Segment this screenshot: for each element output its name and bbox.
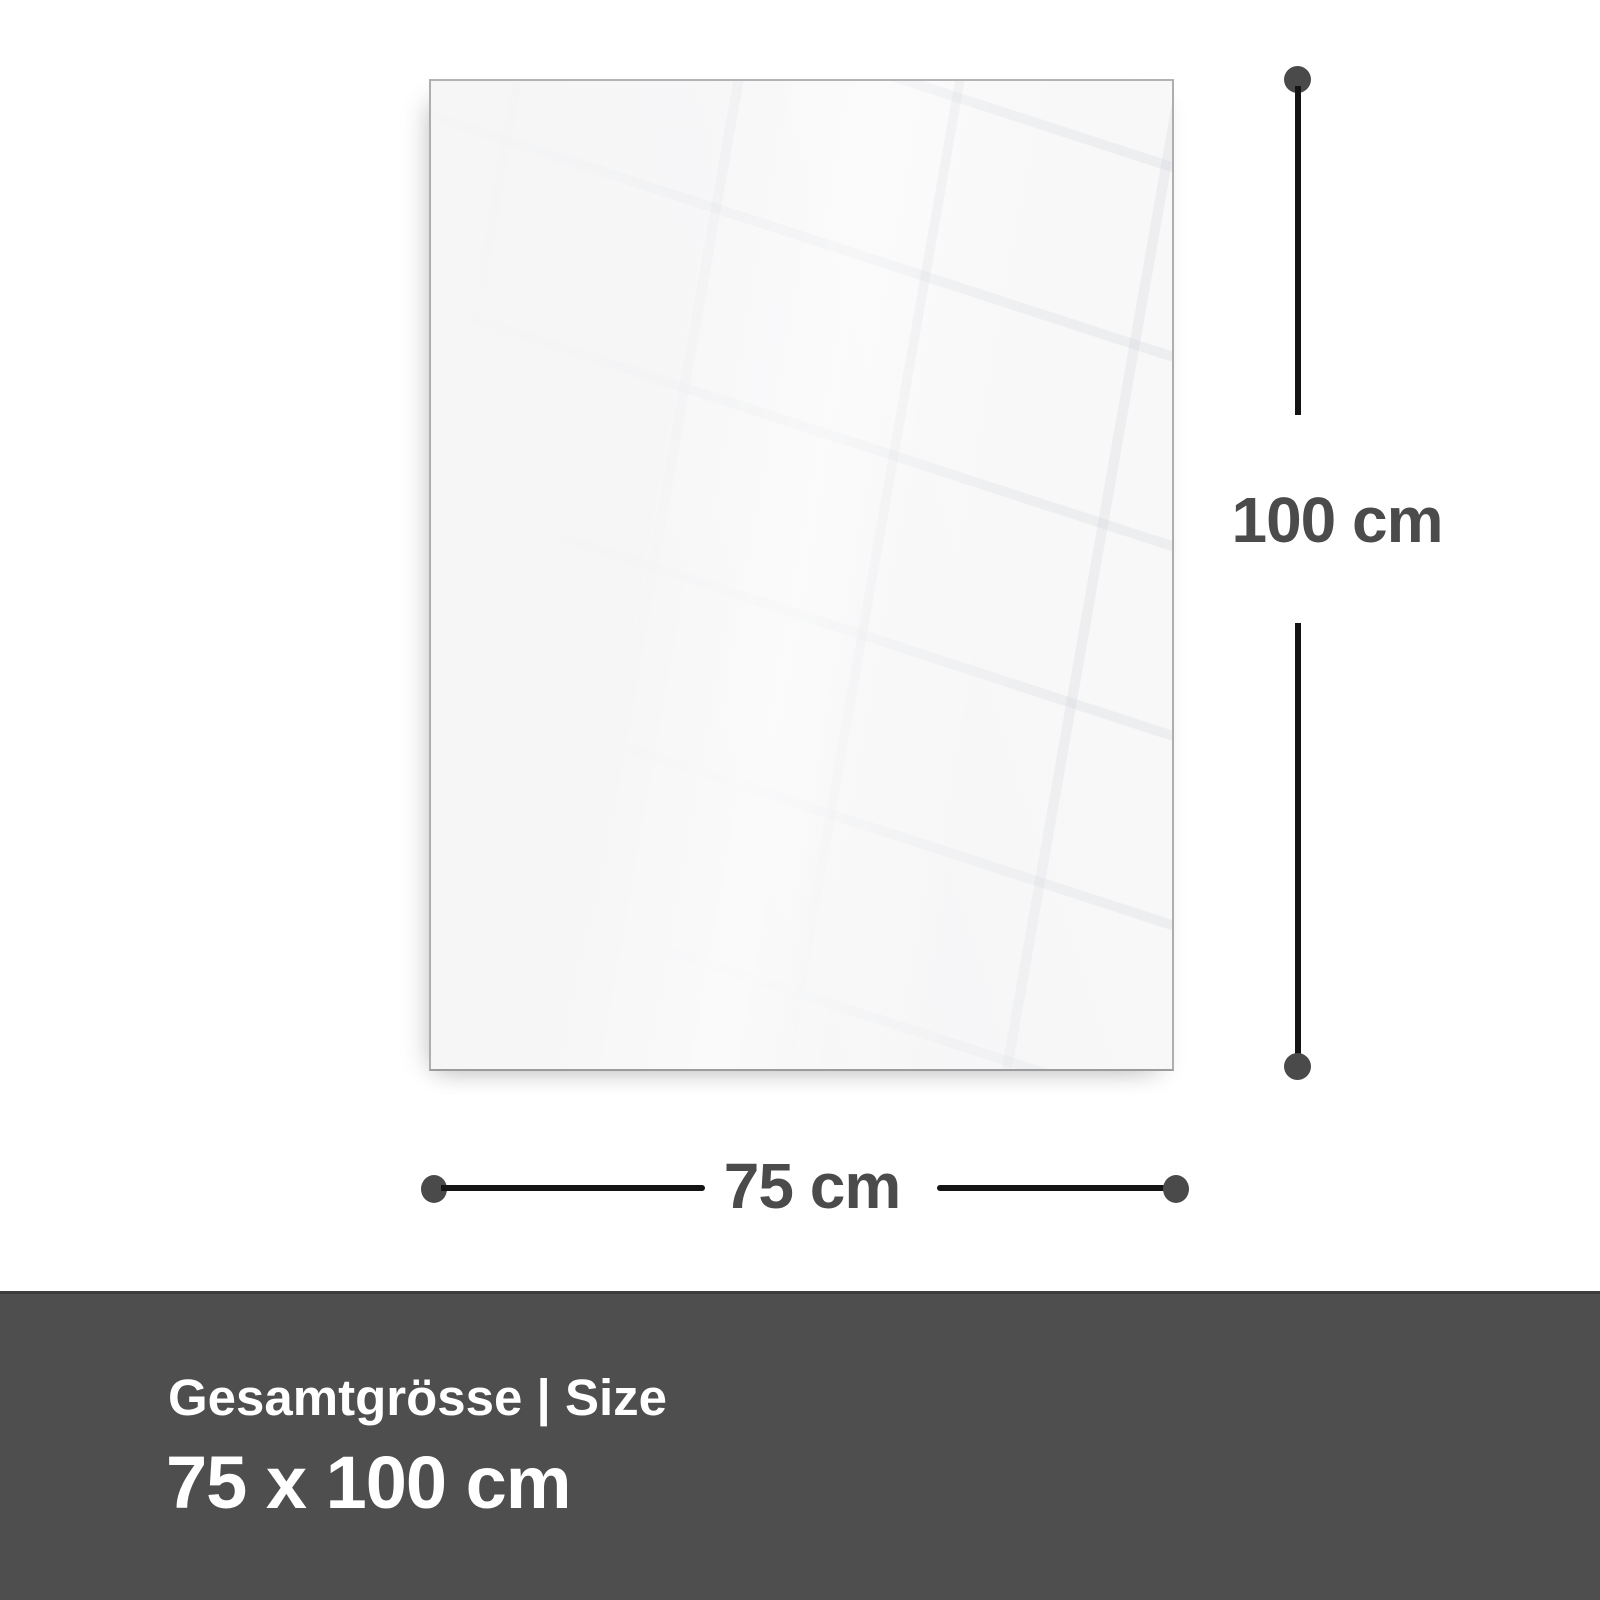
width-dimension-label: 75 cm (724, 1149, 900, 1223)
dimension-endpoint-dot (1163, 1175, 1189, 1203)
footer-bar: Gesamtgrösse | Size 75 x 100 cm (0, 1291, 1600, 1600)
width-dimension-line-segment (937, 1185, 1173, 1191)
glass-panel (429, 79, 1174, 1071)
footer-size-value: 75 x 100 cm (166, 1440, 571, 1525)
dimension-endpoint-dot (1284, 1053, 1311, 1080)
height-dimension-line-segment (1295, 623, 1301, 1063)
height-dimension-line-segment (1295, 86, 1301, 415)
product-size-diagram: 100 cm 75 cm Gesamtgrösse | Size 75 x 10… (0, 0, 1600, 1600)
height-dimension-label: 100 cm (1231, 483, 1442, 557)
glass-reflection (431, 81, 1172, 1069)
width-dimension-line-segment (441, 1185, 705, 1191)
footer-size-heading: Gesamtgrösse | Size (168, 1368, 667, 1427)
